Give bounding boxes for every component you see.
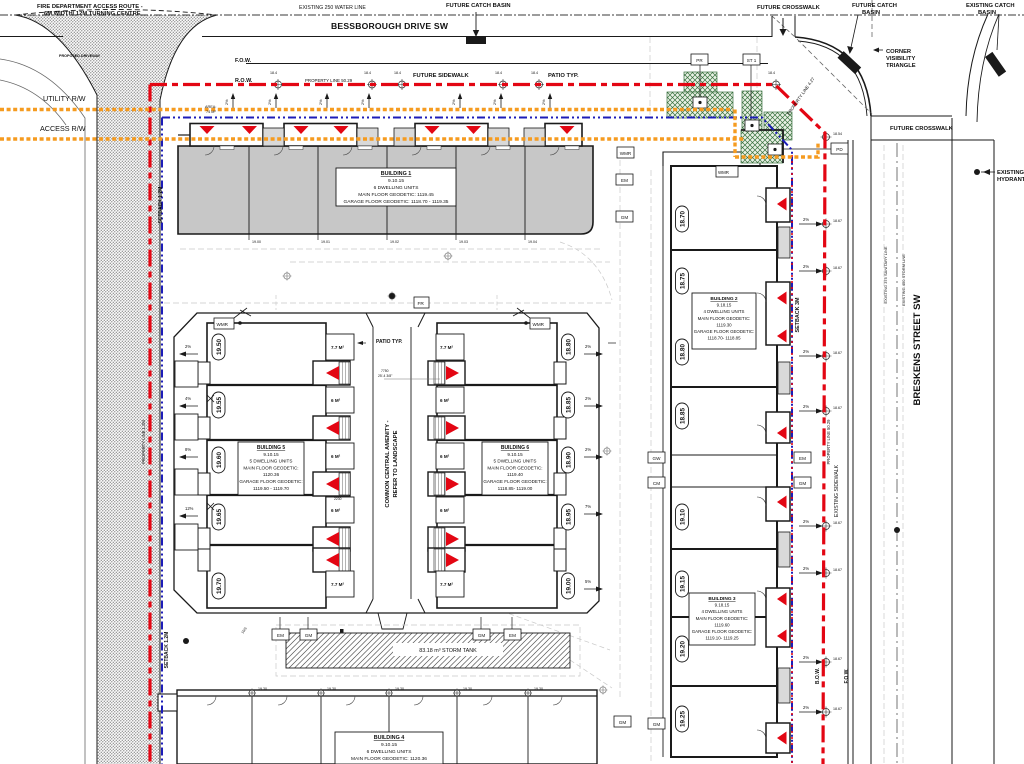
svg-text:2%: 2% — [803, 217, 809, 222]
svg-text:2%: 2% — [803, 655, 809, 660]
svg-text:7.7 M²: 7.7 M² — [440, 582, 453, 587]
svg-text:GM: GM — [478, 633, 486, 638]
svg-text:GARAGE FLOOR GEODETIC: 1118.70: GARAGE FLOOR GEODETIC: 1118.70 - 1119.35 — [344, 199, 449, 205]
svg-text:AREA:: AREA: — [205, 105, 216, 109]
svg-text:ACCESS R/W: ACCESS R/W — [40, 124, 86, 133]
svg-text:MAIN FLOOR GEODETIC:: MAIN FLOOR GEODETIC: — [696, 616, 749, 621]
svg-text:2%: 2% — [803, 566, 809, 571]
svg-text:18.4: 18.4 — [394, 71, 401, 75]
svg-text:8%: 8% — [185, 447, 191, 452]
svg-text:SETBACK 3M: SETBACK 3M — [795, 297, 801, 333]
svg-text:BASIN: BASIN — [978, 10, 996, 16]
svg-text:18.4: 18.4 — [531, 71, 538, 75]
svg-text:GARAGE FLOOR GEODETIC:: GARAGE FLOOR GEODETIC: — [239, 479, 302, 484]
svg-text:19.04: 19.04 — [528, 240, 537, 244]
svg-text:PD: PD — [836, 147, 843, 152]
svg-text:19.02: 19.02 — [390, 240, 399, 244]
svg-text:5%: 5% — [585, 579, 591, 584]
svg-text:B.O.W.: B.O.W. — [815, 667, 821, 684]
svg-text:18.67: 18.67 — [833, 521, 842, 525]
svg-text:WMR: WMR — [217, 322, 229, 327]
svg-text:18.67: 18.67 — [833, 266, 842, 270]
svg-text:GM: GM — [305, 633, 313, 638]
svg-text:GW: GW — [653, 456, 662, 461]
svg-text:EM: EM — [799, 456, 806, 461]
svg-text:PROPERTY LINE 1.2M: PROPERTY LINE 1.2M — [141, 420, 146, 464]
svg-text:EXISTING CATCH: EXISTING CATCH — [966, 3, 1015, 9]
svg-text:EM: EM — [509, 633, 516, 638]
svg-text:FUTURE CROSSWALK: FUTURE CROSSWALK — [890, 126, 954, 132]
svg-text:BUILDING 2: BUILDING 2 — [710, 296, 738, 302]
svg-text:2%: 2% — [268, 99, 272, 105]
svg-text:9.10.15: 9.10.15 — [381, 742, 397, 748]
svg-text:83.18 m³ STORM TANK: 83.18 m³ STORM TANK — [419, 648, 477, 654]
svg-text:18.67: 18.67 — [833, 351, 842, 355]
svg-text:1119.40: 1119.40 — [507, 472, 523, 477]
svg-text:19.03: 19.03 — [459, 240, 468, 244]
svg-text:6 M²: 6 M² — [440, 454, 450, 459]
svg-text:FUTURE CATCH BASIN: FUTURE CATCH BASIN — [446, 3, 511, 9]
svg-text:18.4: 18.4 — [364, 71, 371, 75]
svg-text:COMMON CENTRAL AMENITY -: COMMON CENTRAL AMENITY - — [385, 420, 391, 507]
svg-text:GARAGE FLOOR GEODETIC:: GARAGE FLOOR GEODETIC: — [692, 629, 753, 634]
svg-text:1119.10- 1119.25: 1119.10- 1119.25 — [705, 636, 739, 641]
svg-text:MAIN FLOOR GEODETIC:: MAIN FLOOR GEODETIC: — [487, 465, 542, 470]
svg-text:2%: 2% — [585, 396, 591, 401]
svg-text:SETBACK 1.2M: SETBACK 1.2M — [158, 187, 164, 224]
svg-text:19.25: 19.25 — [679, 711, 686, 727]
svg-text:2%: 2% — [542, 99, 546, 105]
svg-text:WMR: WMR — [718, 170, 729, 175]
svg-text:19.01: 19.01 — [321, 240, 330, 244]
svg-text:1118.70- 1118.85: 1118.70- 1118.85 — [707, 336, 741, 341]
svg-text:MAIN FLOOR GEODETIC:: MAIN FLOOR GEODETIC: — [243, 465, 298, 470]
svg-text:BUILDING 4: BUILDING 4 — [374, 735, 405, 741]
svg-text:PROPERTY LINE 50.29: PROPERTY LINE 50.29 — [826, 419, 831, 465]
svg-text:BUILDING 6: BUILDING 6 — [501, 445, 530, 451]
svg-text:ST 1: ST 1 — [747, 58, 757, 63]
svg-text:19.10: 19.10 — [679, 509, 686, 525]
svg-text:5 DWELLING UNITS: 5 DWELLING UNITS — [494, 459, 537, 464]
svg-text:19.55: 19.55 — [216, 397, 223, 413]
svg-text:18.4: 18.4 — [495, 71, 502, 75]
svg-text:CORNER: CORNER — [886, 49, 912, 55]
svg-text:19.50: 19.50 — [216, 339, 223, 355]
svg-text:BUILDING 1: BUILDING 1 — [381, 171, 412, 177]
svg-text:FIRE DEPARTMENT ACCESS ROUTE -: FIRE DEPARTMENT ACCESS ROUTE - — [37, 4, 143, 10]
svg-text:19.65: 19.65 — [216, 509, 223, 525]
svg-text:18.95: 18.95 — [565, 509, 572, 525]
svg-text:6 M²: 6 M² — [331, 454, 341, 459]
svg-text:SETBACK 1.2M: SETBACK 1.2M — [164, 632, 170, 669]
svg-text:PATIO TYP.: PATIO TYP. — [548, 73, 579, 79]
svg-text:2%: 2% — [185, 344, 191, 349]
svg-text:18.85: 18.85 — [679, 408, 686, 424]
svg-text:UTILITY R/W: UTILITY R/W — [43, 94, 86, 103]
svg-text:74 M²: 74 M² — [206, 110, 216, 114]
svg-text:6M WIDTH/ 12M TURNING CENTRE: 6M WIDTH/ 12M TURNING CENTRE — [44, 11, 141, 17]
svg-text:19.30: 19.30 — [327, 687, 336, 691]
svg-text:EXISTING SIDEWALK: EXISTING SIDEWALK — [834, 464, 840, 517]
svg-text:12%: 12% — [185, 506, 194, 511]
svg-text:6 M²: 6 M² — [331, 508, 341, 513]
svg-text:25'-4 3/8": 25'-4 3/8" — [378, 374, 393, 378]
svg-text:19.30: 19.30 — [534, 687, 543, 691]
svg-text:19.00: 19.00 — [252, 240, 261, 244]
svg-text:19.30: 19.30 — [395, 687, 404, 691]
svg-text:WMR: WMR — [620, 151, 632, 156]
svg-text:EXISTING 250 WATER LINE: EXISTING 250 WATER LINE — [299, 5, 366, 11]
svg-text:2%: 2% — [803, 705, 809, 710]
svg-text:18.4: 18.4 — [270, 71, 277, 75]
svg-text:19.00: 19.00 — [565, 578, 572, 594]
svg-text:18.67: 18.67 — [833, 707, 842, 711]
svg-text:PATIO TYP.: PATIO TYP. — [376, 339, 403, 345]
svg-text:FUTURE CROSSWALK: FUTURE CROSSWALK — [757, 5, 821, 11]
svg-text:6 M²: 6 M² — [440, 398, 450, 403]
svg-text:PROPOSED DRIVEWAY: PROPOSED DRIVEWAY — [59, 54, 101, 58]
svg-text:7.7 M²: 7.7 M² — [331, 345, 344, 350]
svg-text:18.67: 18.67 — [833, 219, 842, 223]
svg-text:7750: 7750 — [381, 369, 389, 373]
svg-text:19.70: 19.70 — [216, 578, 223, 594]
svg-text:19.60: 19.60 — [216, 452, 223, 468]
svg-text:18.67: 18.67 — [833, 568, 842, 572]
svg-text:18.67: 18.67 — [833, 406, 842, 410]
svg-text:2%: 2% — [585, 447, 591, 452]
svg-text:HYDRANT: HYDRANT — [997, 177, 1024, 183]
svg-text:18.4: 18.4 — [768, 71, 775, 75]
svg-text:EXISTING 450 STORM LINE: EXISTING 450 STORM LINE — [901, 254, 906, 306]
svg-text:GM: GM — [619, 720, 627, 725]
svg-text:6 DWELLING UNITS: 6 DWELLING UNITS — [367, 749, 412, 755]
svg-text:GM: GM — [799, 481, 807, 486]
svg-text:2%: 2% — [361, 99, 365, 105]
svg-text:19.20: 19.20 — [679, 641, 686, 657]
svg-text:TRIANGLE: TRIANGLE — [886, 63, 916, 69]
svg-text:GM: GM — [621, 215, 629, 220]
svg-text:7%: 7% — [585, 504, 591, 509]
svg-text:18.54: 18.54 — [833, 132, 842, 136]
svg-text:2%: 2% — [803, 519, 809, 524]
svg-text:19.30: 19.30 — [463, 687, 472, 691]
svg-text:1119.50 - 1119.70: 1119.50 - 1119.70 — [253, 486, 289, 491]
svg-text:2%: 2% — [585, 344, 591, 349]
svg-text:18.90: 18.90 — [565, 452, 572, 468]
svg-text:FUTURE SIDEWALK: FUTURE SIDEWALK — [413, 73, 470, 79]
svg-text:2230: 2230 — [334, 497, 342, 501]
svg-text:4 DWELLING UNITS: 4 DWELLING UNITS — [704, 309, 745, 314]
svg-text:BUILDING 5: BUILDING 5 — [257, 445, 286, 451]
svg-text:18.80: 18.80 — [565, 339, 572, 355]
svg-text:2%: 2% — [225, 99, 229, 105]
svg-text:1119.60: 1119.60 — [714, 622, 730, 627]
svg-text:9.10.15: 9.10.15 — [388, 178, 404, 184]
svg-text:BRESKENS STREET SW: BRESKENS STREET SW — [912, 295, 923, 406]
svg-text:7.7 M²: 7.7 M² — [331, 582, 344, 587]
svg-text:9.10.15: 9.10.15 — [263, 452, 279, 457]
svg-text:PROPERTY LINE 50.29: PROPERTY LINE 50.29 — [305, 78, 353, 83]
svg-text:BASIN: BASIN — [862, 10, 880, 16]
svg-text:GARAGE FLOOR GEODETIC:: GARAGE FLOOR GEODETIC: — [694, 329, 755, 334]
svg-text:2%: 2% — [803, 264, 809, 269]
svg-text:18.67: 18.67 — [833, 657, 842, 661]
svg-text:7.7 M²: 7.7 M² — [440, 345, 453, 350]
svg-text:9.18.15: 9.18.15 — [717, 303, 732, 308]
svg-text:FR: FR — [418, 301, 425, 307]
svg-text:1120.36: 1120.36 — [263, 472, 280, 477]
svg-text:F.O.W.: F.O.W. — [844, 668, 850, 684]
svg-text:VISIBILITY: VISIBILITY — [886, 56, 915, 62]
svg-text:18.85: 18.85 — [565, 397, 572, 413]
svg-text:4%: 4% — [185, 396, 191, 401]
svg-text:R.O.W.: R.O.W. — [235, 78, 253, 84]
svg-text:WMR: WMR — [533, 322, 545, 327]
svg-text:MAIN FLOOR GEODETIC:: MAIN FLOOR GEODETIC: — [698, 316, 751, 321]
svg-text:5 DWELLING UNITS: 5 DWELLING UNITS — [250, 459, 293, 464]
svg-text:PR: PR — [696, 58, 703, 63]
svg-text:18.70: 18.70 — [679, 211, 686, 227]
svg-text:F.O.W.: F.O.W. — [235, 58, 252, 64]
svg-text:18.75: 18.75 — [679, 273, 686, 289]
svg-text:6 M²: 6 M² — [440, 508, 450, 513]
svg-text:2%: 2% — [452, 99, 456, 105]
svg-text:MAIN FLOOR GEODETIC: 1119.45: MAIN FLOOR GEODETIC: 1119.45 — [358, 192, 434, 198]
svg-text:2%: 2% — [493, 99, 497, 105]
svg-text:2%: 2% — [803, 404, 809, 409]
svg-text:EXISTING: EXISTING — [997, 170, 1024, 176]
svg-text:CM: CM — [653, 481, 660, 486]
svg-text:BUILDING 3: BUILDING 3 — [708, 596, 736, 602]
svg-text:6 DWELLING UNITS: 6 DWELLING UNITS — [374, 185, 419, 191]
svg-text:9.18.15: 9.18.15 — [715, 603, 730, 608]
svg-text:19.15: 19.15 — [679, 576, 686, 592]
svg-text:2%: 2% — [319, 99, 323, 105]
svg-text:GARAGE FLOOR GEODETIC:: GARAGE FLOOR GEODETIC: — [483, 479, 546, 484]
svg-text:EXISTING 375 SANITARY LINE: EXISTING 375 SANITARY LINE — [883, 246, 888, 303]
svg-text:2%: 2% — [803, 349, 809, 354]
svg-text:9.10.15: 9.10.15 — [507, 452, 523, 457]
svg-text:GM: GM — [653, 722, 661, 727]
svg-text:FUTURE CATCH: FUTURE CATCH — [852, 3, 897, 9]
svg-text:BESSBOROUGH DRIVE SW: BESSBOROUGH DRIVE SW — [331, 21, 449, 31]
svg-text:REFER TO LANDSCAPE: REFER TO LANDSCAPE — [393, 430, 399, 497]
svg-text:19.30: 19.30 — [258, 687, 267, 691]
svg-text:EM: EM — [621, 178, 628, 183]
svg-text:MAIN FLOOR GEODETIC: 1120.36: MAIN FLOOR GEODETIC: 1120.36 — [351, 756, 427, 762]
svg-text:EM: EM — [277, 633, 284, 638]
svg-text:18.80: 18.80 — [679, 344, 686, 360]
svg-text:4 DWELLING UNITS: 4 DWELLING UNITS — [702, 609, 743, 614]
svg-text:1119.30: 1119.30 — [716, 322, 732, 327]
svg-text:1118.85- 1119.00: 1118.85- 1119.00 — [498, 486, 533, 491]
svg-text:6 M²: 6 M² — [331, 398, 341, 403]
